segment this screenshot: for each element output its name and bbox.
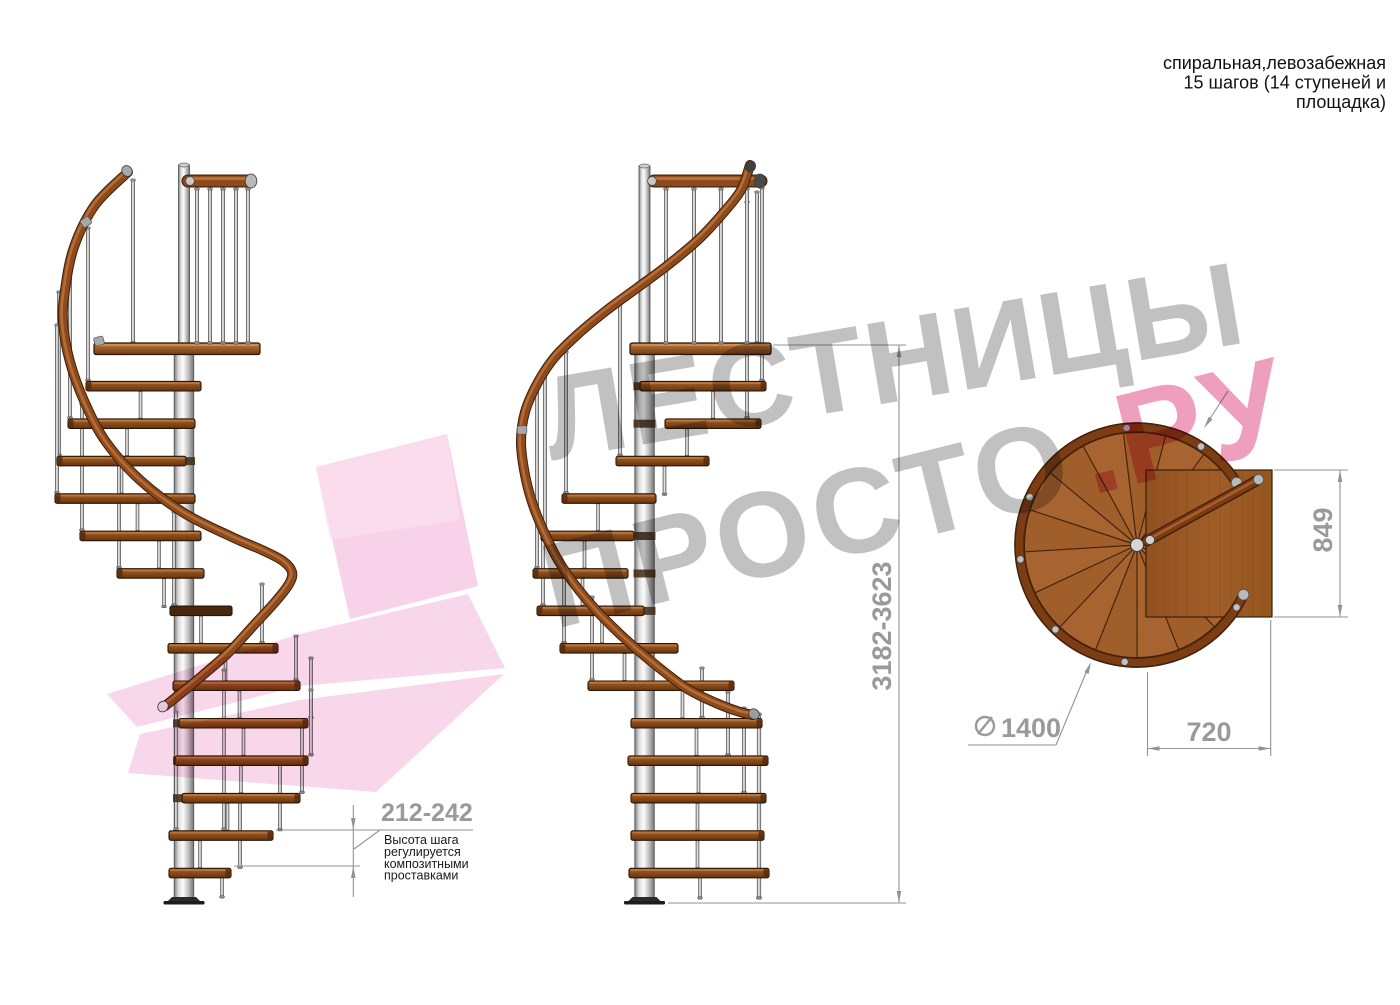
svg-text:проставками: проставками: [384, 869, 458, 883]
svg-text:спиральная,левозабежная: спиральная,левозабежная: [1163, 53, 1386, 73]
svg-text:1400: 1400: [1001, 713, 1061, 743]
svg-text:площадка): площадка): [1296, 92, 1386, 112]
svg-text:720: 720: [1186, 717, 1231, 747]
svg-text:849: 849: [1308, 507, 1338, 552]
svg-text:3182-3623: 3182-3623: [867, 561, 897, 690]
svg-text:15 шагов (14 ступеней и: 15 шагов (14 ступеней и: [1184, 73, 1387, 93]
svg-text:212-242: 212-242: [381, 799, 473, 827]
